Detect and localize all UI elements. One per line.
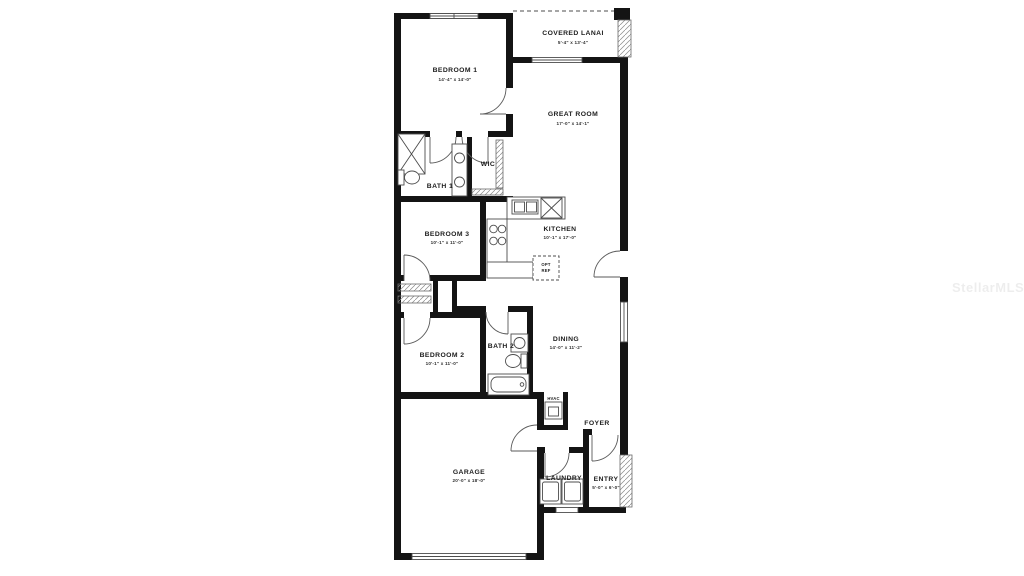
bath1-name: BATH 1 [427,183,453,190]
wall-garage-bottom-a [394,553,412,560]
great-room-name: GREAT ROOM [548,111,598,118]
wall-right-lower [620,342,628,455]
kitchen-counter-left [487,219,533,278]
wall-bath-band-top-c [488,131,513,137]
wall-bedroom3-bottom-b [430,275,486,281]
wall-hvac-bottom [537,425,568,430]
floor-plan-svg: BEDROOM 1 14'-4" x 14'-0" COVERED LANAI … [0,0,1024,576]
wall-garage-right-upper [537,392,544,425]
wall-laundry-top-a [537,447,545,453]
linen-shelves [398,284,431,303]
room-label-bedroom2: BEDROOM 2 10'-1" x 11'-0" [420,352,465,366]
porch-column-entry [620,455,632,507]
room-label-bedroom3: BEDROOM 3 10'-1" x 11'-0" [425,231,470,245]
room-label-entry: ENTRY 5'-0" x 6'-0" [592,476,620,490]
hvac-label: HVAC [547,396,559,401]
toilet-bath1-fixture [398,170,420,185]
wall-bedroom3-bottom-a [394,275,404,281]
dining-name: DINING [553,336,579,343]
bedroom1-name: BEDROOM 1 [433,67,478,74]
wall-bath-band-bottom [394,196,513,202]
labels-layer: BEDROOM 1 14'-4" x 14'-0" COVERED LANAI … [420,30,620,490]
toilet-bath2-fixture [506,354,528,368]
window-laundry [556,508,578,513]
door-bedroom1 [480,88,506,114]
wall-hvac-right [563,392,568,430]
door-exterior-right [594,251,620,277]
dining-dims: 14'-0" x 11'-2" [550,345,583,350]
bedroom3-name: BEDROOM 3 [425,231,470,238]
bath2-name: BATH 2 [488,343,514,350]
hvac-unit [545,402,562,419]
bathtub-fixture [488,374,529,395]
vanity-bath1-fixture [452,144,467,196]
wall-garage-right-lower [537,451,544,560]
door-bath2 [486,312,508,334]
garage-name: GARAGE [453,469,485,476]
wall-right-mid [620,277,628,302]
wall-hall-closet [433,281,438,312]
wall-entry-top [583,429,592,435]
room-label-kitchen: KITCHEN 10'-1" x 17'-0" [543,226,576,240]
wall-bedroom2-bath2 [480,312,486,396]
kitchen-counter-top [507,197,565,219]
door-bedroom3 [404,255,430,281]
floor-plan-image: BEDROOM 1 14'-4" x 14'-0" COVERED LANAI … [0,0,1024,576]
wall-lanai-post [614,8,630,20]
opt-ref-label: OPT REF [541,262,550,273]
wall-entry-bottom [583,507,626,513]
door-garage-service [511,425,537,451]
entry-dims: 5'-0" x 6'-0" [592,485,620,490]
wall-laundry-right [583,435,589,513]
wall-bedroom1-right-upper [506,13,513,88]
ref-label: REF [542,268,551,273]
room-label-great-room: GREAT ROOM 17'-0" x 14'-1" [548,111,598,126]
foyer-name: FOYER [584,420,609,427]
door-laundry [545,453,569,477]
lanai-name: COVERED LANAI [542,30,603,37]
room-label-garage: GARAGE 20'-0" x 18'-0" [452,469,485,483]
bedroom3-dims: 10'-1" x 11'-0" [431,240,464,245]
entry-name: ENTRY [594,476,619,483]
lanai-dims: 5'-4" x 13'-4" [558,40,588,45]
wall-bath-band-top-b [456,131,462,137]
garage-dims: 20'-0" x 18'-0" [452,478,485,483]
bedroom2-name: BEDROOM 2 [420,352,465,359]
watermark: StellarMLS [952,280,1022,295]
wall-right-upper [620,57,628,251]
laundry-name: LAUNDRY [546,475,582,482]
door-bedroom2 [404,318,430,344]
wall-bedroom3-kitchen [480,202,486,275]
kitchen-dims: 10'-1" x 17'-0" [543,235,576,240]
wall-lanai-greatroom-a [509,57,532,63]
room-label-bedroom1: BEDROOM 1 14'-4" x 14'-0" [433,67,478,82]
washer-dryer-fixture [540,479,583,504]
wall-laundry-bottom-a [537,507,556,513]
fixtures-layer [398,134,583,504]
wall-bedroom2-top-a [394,312,404,318]
wall-bath2-top-a [452,306,486,312]
wall-lanai-greatroom-b [582,57,622,63]
room-label-dining: DINING 14'-0" x 11'-2" [550,336,583,350]
bedroom1-dims: 14'-4" x 14'-0" [438,77,471,82]
bedroom2-dims: 10'-1" x 11'-0" [426,361,459,366]
kitchen-name: KITCHEN [543,226,576,233]
wic-name: WIC [481,161,495,168]
shower-fixture [398,134,425,174]
room-label-covered-lanai: COVERED LANAI 5'-4" x 13'-4" [542,30,603,45]
porch-column-lanai [618,20,631,57]
door-entry [592,435,618,461]
wall-bath1-wic-divider [467,137,472,196]
wall-garage-bottom-b [526,553,544,560]
great-room-dims: 17'-0" x 14'-1" [556,121,589,126]
opt-label: OPT [541,262,550,267]
wall-bedroom2-top-b [430,312,486,318]
